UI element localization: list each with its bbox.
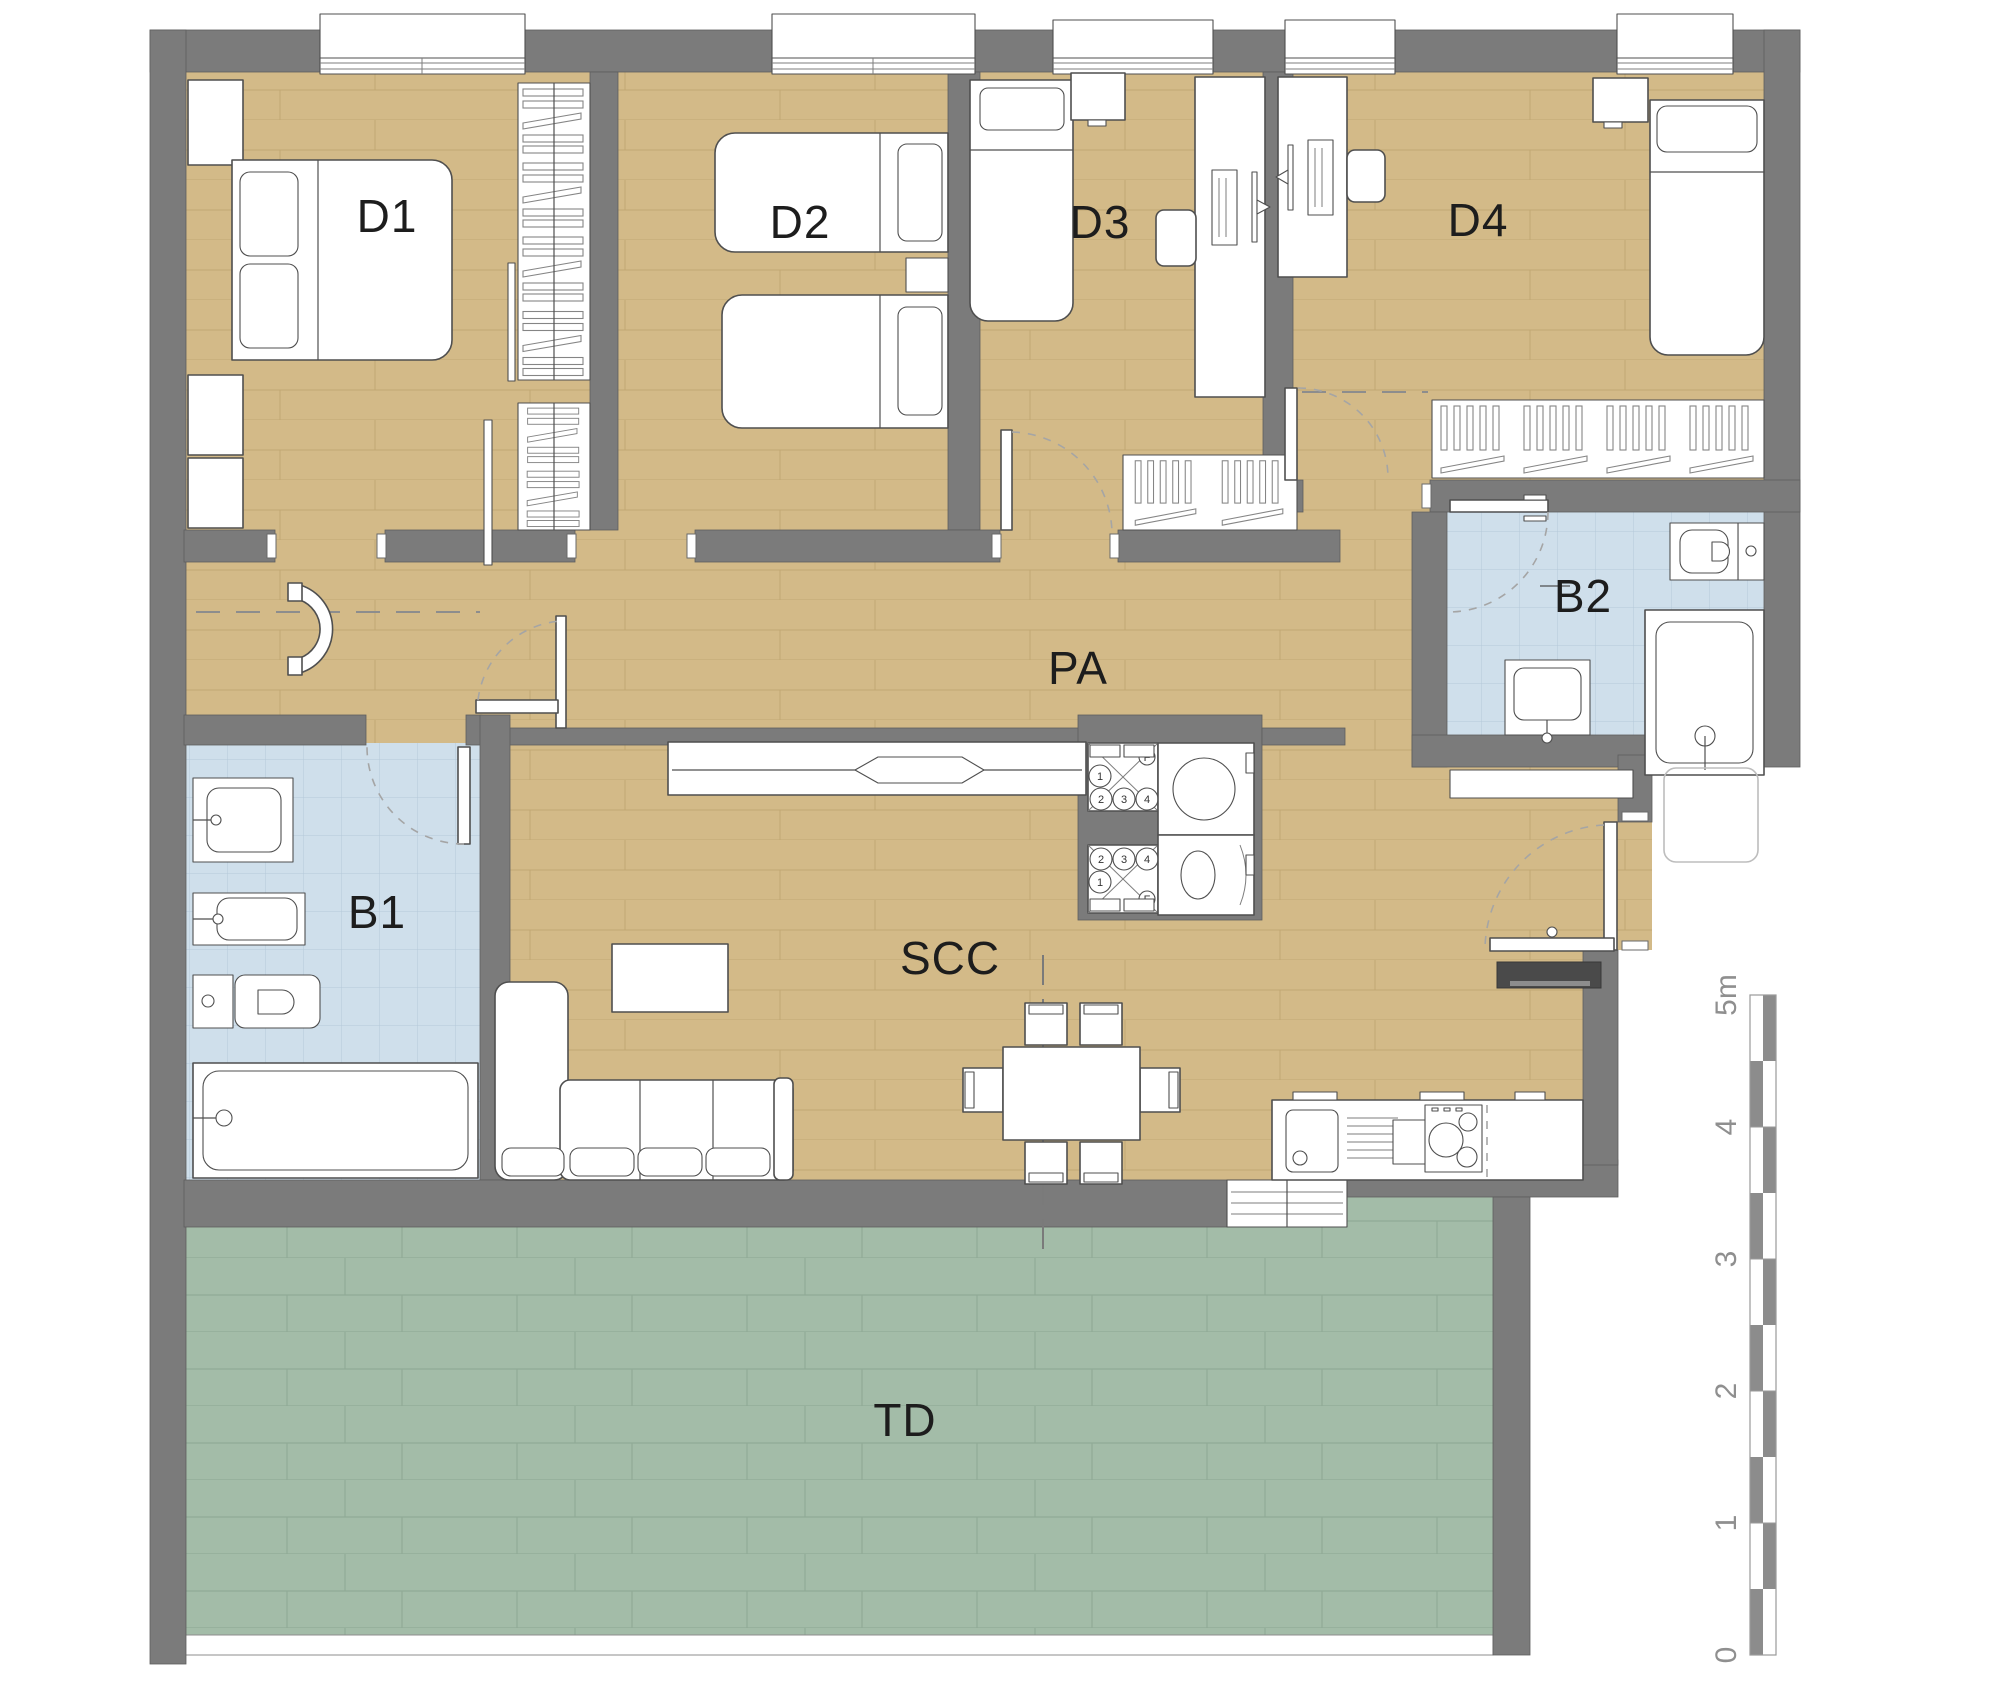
cooktop: [1425, 1105, 1482, 1172]
washing-machine: [1158, 743, 1254, 835]
shelf: [188, 458, 243, 528]
bidet: [193, 893, 305, 945]
svg-text:3: 3: [1121, 854, 1127, 866]
terrace-edge: [184, 1635, 1493, 1655]
scale-label-2: 2: [1710, 1383, 1743, 1400]
single-bed: [1650, 100, 1764, 355]
nightstand: [188, 80, 243, 165]
window-d3: [1053, 20, 1213, 74]
monitor-icon: [1252, 172, 1257, 242]
wall-terrace: [184, 1180, 1227, 1227]
floor-plan: 1 2 3 4 F 1 2 3 4 F: [0, 0, 2000, 1685]
room-label-d1: D1: [357, 190, 418, 242]
kitchen-sink: [1286, 1110, 1338, 1172]
window-d1: [320, 14, 525, 74]
appliance-panel: 1 2 3 4 F: [1088, 845, 1158, 913]
desk: [1276, 77, 1347, 277]
single-bed: [970, 80, 1073, 321]
window-d2: [772, 14, 975, 74]
single-bed: [715, 133, 948, 252]
nightstand: [188, 375, 243, 455]
room-label-b1: B1: [348, 886, 406, 938]
entrance-landing: [1652, 765, 1802, 952]
nightstand: [906, 258, 948, 292]
room-label-scc: SCC: [900, 932, 1000, 984]
appliance-panel: 1 2 3 4 F: [1088, 743, 1158, 811]
desk: [1195, 77, 1270, 397]
scale-label-4: 4: [1710, 1119, 1743, 1136]
svg-text:2: 2: [1098, 854, 1104, 866]
hall-closet: [1450, 770, 1633, 798]
sink: [1505, 660, 1590, 743]
terrace-sliding-door: [1227, 1180, 1347, 1227]
desk-chair: [1347, 150, 1385, 202]
shower: [1645, 610, 1764, 775]
room-label-d2: D2: [770, 196, 831, 248]
window-d4-right: [1617, 14, 1733, 74]
svg-text:4: 4: [1144, 854, 1150, 866]
monitor-icon: [1288, 145, 1293, 210]
scale-label-0: 0: [1710, 1647, 1743, 1664]
cabinet: [1071, 73, 1125, 120]
scale-label-1: 1: [1710, 1515, 1743, 1532]
entry-shelf: [1490, 938, 1614, 951]
svg-text:4: 4: [1144, 794, 1150, 806]
bathtub: [193, 1063, 478, 1178]
entrance-door: [1604, 822, 1617, 950]
svg-text:1: 1: [1097, 877, 1103, 889]
scale-label-5m: 5m: [1710, 974, 1743, 1016]
sideboard: [668, 742, 1086, 795]
toilet: [193, 975, 320, 1028]
room-label-b2: B2: [1554, 570, 1612, 622]
svg-text:2: 2: [1098, 794, 1104, 806]
room-label-d3: D3: [1070, 196, 1131, 248]
wardrobe-shoe-rack: [1123, 455, 1297, 530]
desk-chair: [1156, 210, 1196, 266]
room-label-pa: PA: [1048, 642, 1108, 694]
window-d4-left: [1285, 20, 1395, 74]
wall-right: [1764, 30, 1800, 767]
wall-terrace-right: [1493, 1197, 1530, 1655]
coffee-table: [612, 944, 728, 1012]
wall-left: [150, 30, 186, 1664]
kitchen-counter: [1272, 1092, 1583, 1180]
scale-label-3: 3: [1710, 1251, 1743, 1268]
wardrobe-column: [518, 83, 590, 530]
room-label-td: TD: [873, 1394, 936, 1446]
svg-text:3: 3: [1121, 794, 1127, 806]
double-bed: [232, 160, 452, 360]
svg-text:1: 1: [1097, 771, 1103, 783]
closet-sliding-panel: [484, 420, 492, 565]
cabinet: [1593, 78, 1648, 122]
room-label-d4: D4: [1448, 194, 1509, 246]
sink: [193, 778, 293, 862]
closet-sliding-panel: [508, 263, 515, 381]
wardrobe-shoe-rack: [1432, 400, 1764, 478]
toilet: [1670, 523, 1764, 580]
dining-table: [1003, 1047, 1140, 1140]
oven: [1158, 835, 1254, 915]
single-bed: [722, 295, 948, 428]
